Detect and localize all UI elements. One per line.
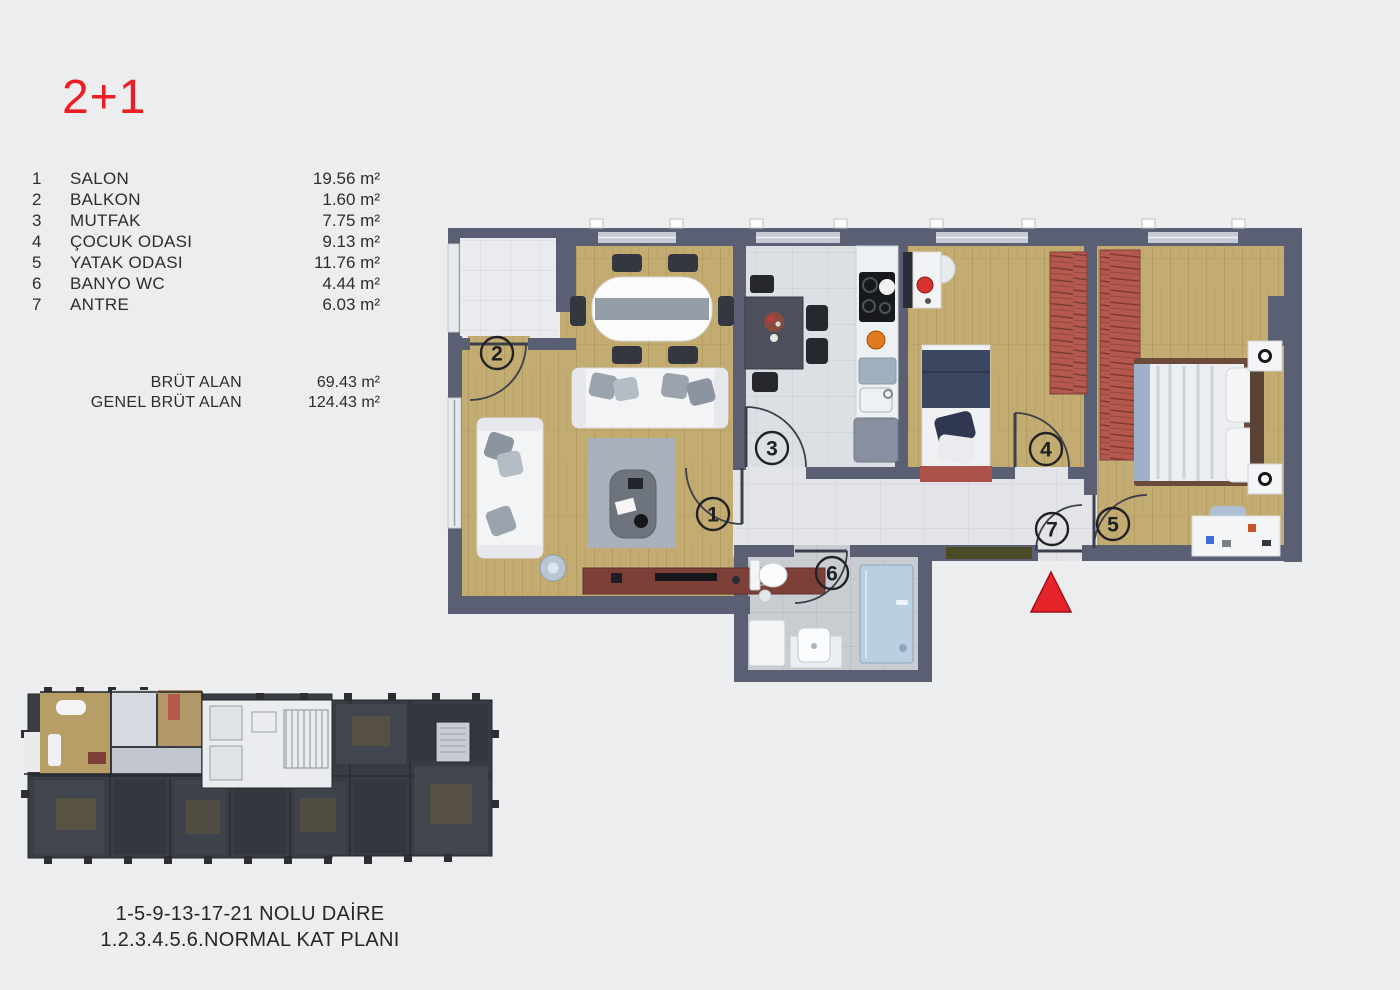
marker-label: 4	[1040, 439, 1052, 462]
fruit-bowl	[867, 331, 885, 349]
room-legend: 1 SALON 19.56 m² 2 BALKON 1.60 m² 3 MUTF…	[32, 168, 380, 315]
room-number: 3	[32, 210, 70, 231]
bowl	[634, 514, 648, 528]
kitchen-door-gap	[746, 467, 806, 479]
room-name: BANYO WC	[70, 273, 270, 294]
bed-foot-bench	[920, 466, 992, 482]
wall-balcony-top	[448, 228, 570, 238]
legend-row-salon: 1 SALON 19.56 m²	[32, 168, 380, 189]
wall-stub	[1084, 548, 1097, 561]
double-bed	[1134, 356, 1264, 488]
kitchen-table	[745, 297, 803, 369]
caption-line-apartments: 1-5-9-13-17-21 NOLU DAİRE	[30, 901, 470, 927]
legend-row-balkon: 2 BALKON 1.60 m²	[32, 189, 380, 210]
room-name: MUTFAK	[70, 210, 270, 231]
hallway-floor	[733, 470, 1097, 557]
flower-centerpiece	[764, 312, 784, 332]
gross-area-label: BRÜT ALAN	[32, 373, 242, 393]
apartment-floor-plan: 1 2 3 4 5 6 7	[445, 195, 1335, 700]
sofa-armrest	[477, 545, 543, 558]
caption-line-floors: 1.2.3.4.5.6.NORMAL KAT PLANI	[30, 927, 470, 953]
room-area: 6.03 m²	[270, 294, 380, 315]
room-name: YATAK ODASI	[70, 252, 270, 273]
general-gross-area-row: GENEL BRÜT ALAN 124.43 m²	[32, 393, 380, 413]
entrance-triangle-icon	[1031, 572, 1071, 612]
balcony-side-window	[448, 244, 459, 332]
marker-label: 5	[1107, 514, 1119, 537]
shower-handle	[896, 600, 908, 605]
marker-label: 3	[766, 438, 778, 461]
room-number: 7	[32, 294, 70, 315]
shower	[860, 565, 913, 663]
room-area: 4.44 m²	[270, 273, 380, 294]
stair-core	[202, 700, 332, 788]
mini-tv-unit	[88, 752, 106, 764]
desk-top	[1192, 516, 1280, 556]
room-area: 1.60 m²	[270, 189, 380, 210]
wall-bath-top-right	[850, 545, 930, 557]
dining-table-runner	[595, 298, 709, 320]
room-name: BALKON	[70, 189, 270, 210]
plan-caption: 1-5-9-13-17-21 NOLU DAİRE 1.2.3.4.5.6.NO…	[30, 901, 470, 953]
mini-hall-bath	[112, 748, 202, 774]
area-totals: BRÜT ALAN 69.43 m² GENEL BRÜT ALAN 124.4…	[32, 373, 380, 413]
kitchen-cabinet	[854, 418, 898, 462]
room-area: 9.13 m²	[270, 231, 380, 252]
building-slab	[21, 687, 499, 864]
room-number: 4	[32, 231, 70, 252]
entrance-doormat	[946, 547, 1032, 559]
gross-area-value: 69.43 m²	[242, 373, 380, 393]
wall-right-notch	[1268, 296, 1284, 346]
room-area: 7.75 m²	[270, 210, 380, 231]
wall-bath-right	[918, 545, 932, 682]
wall-salon-kitchen	[733, 240, 746, 470]
room-name: SALON	[70, 168, 270, 189]
washing-machine	[749, 620, 785, 666]
room-area: 11.76 m²	[270, 252, 380, 273]
kids-room-door-gap	[1015, 467, 1068, 479]
legend-row-antre: 7 ANTRE 6.03 m²	[32, 294, 380, 315]
decor-item	[732, 576, 740, 584]
bed-pillow-light	[936, 434, 975, 465]
sofa-armrest	[572, 368, 586, 428]
legend-row-yatak-odasi: 5 YATAK ODASI 11.76 m²	[32, 252, 380, 273]
sofa-armrest	[714, 368, 728, 428]
red-stool	[917, 277, 933, 293]
room-number: 6	[32, 273, 70, 294]
room-area: 19.56 m²	[270, 168, 380, 189]
wall-right	[1284, 228, 1302, 562]
mini-balcony	[24, 732, 42, 772]
gross-area-row: BRÜT ALAN 69.43 m²	[32, 373, 380, 393]
single-bed	[920, 345, 992, 483]
tv-unit	[583, 568, 825, 594]
sofa-vertical	[477, 418, 543, 558]
room-number: 5	[32, 252, 70, 273]
room-name: ANTRE	[70, 294, 270, 315]
window-outer-ticks	[590, 219, 1245, 228]
cup	[770, 334, 778, 342]
marker-label: 7	[1046, 519, 1058, 542]
tray	[628, 478, 643, 489]
mini-wardrobe	[168, 694, 180, 720]
general-gross-area-value: 124.43 m²	[242, 393, 380, 413]
marker-label: 6	[826, 563, 838, 586]
wall-balcony-sill-left	[448, 338, 470, 350]
highlighted-unit	[24, 690, 202, 774]
side-table-center	[548, 563, 559, 574]
sofa-horizontal	[572, 368, 728, 428]
balcony-floor	[458, 238, 558, 338]
speaker	[611, 573, 622, 583]
legend-row-banyo: 6 BANYO WC 4.44 m²	[32, 273, 380, 294]
elevator-shaft	[210, 746, 242, 780]
mini-table	[56, 700, 86, 715]
side-table	[540, 555, 566, 581]
entrance-door-gap	[1038, 545, 1082, 561]
legend-row-mutfak: 3 MUTFAK 7.75 m²	[32, 210, 380, 231]
bed-blanket	[922, 350, 990, 408]
floor-plan-page: 2+1 1 SALON 19.56 m² 2 BALKON 1.60 m² 3 …	[0, 0, 1400, 990]
building-floor-plan	[10, 680, 510, 880]
room-name: ÇOCUK ODASI	[70, 231, 270, 252]
marker-label: 1	[707, 504, 719, 527]
tv-screen	[655, 573, 717, 581]
wall-stub2	[1068, 467, 1097, 479]
plan-type-title: 2+1	[62, 70, 146, 125]
wall-salon-bottom	[448, 596, 750, 614]
sofa-armrest	[477, 418, 543, 431]
wall-bath-left	[734, 545, 748, 682]
wall-balcony-sill-right	[528, 338, 576, 350]
room-number: 1	[32, 168, 70, 189]
mini-sofa	[48, 734, 61, 766]
wall-bath-bottom	[734, 670, 932, 682]
cooktop	[859, 272, 895, 322]
mini-kitchen	[112, 690, 156, 746]
elevator-shaft	[210, 706, 242, 740]
coffee-table	[610, 470, 656, 538]
marker-label: 2	[491, 343, 503, 366]
legend-row-cocuk-odasi: 4 ÇOCUK ODASI 9.13 m²	[32, 231, 380, 252]
kids-wardrobe	[1050, 252, 1087, 394]
general-gross-area-label: GENEL BRÜT ALAN	[32, 393, 242, 413]
wall-bath-top-left	[734, 545, 794, 557]
room-number: 2	[32, 189, 70, 210]
